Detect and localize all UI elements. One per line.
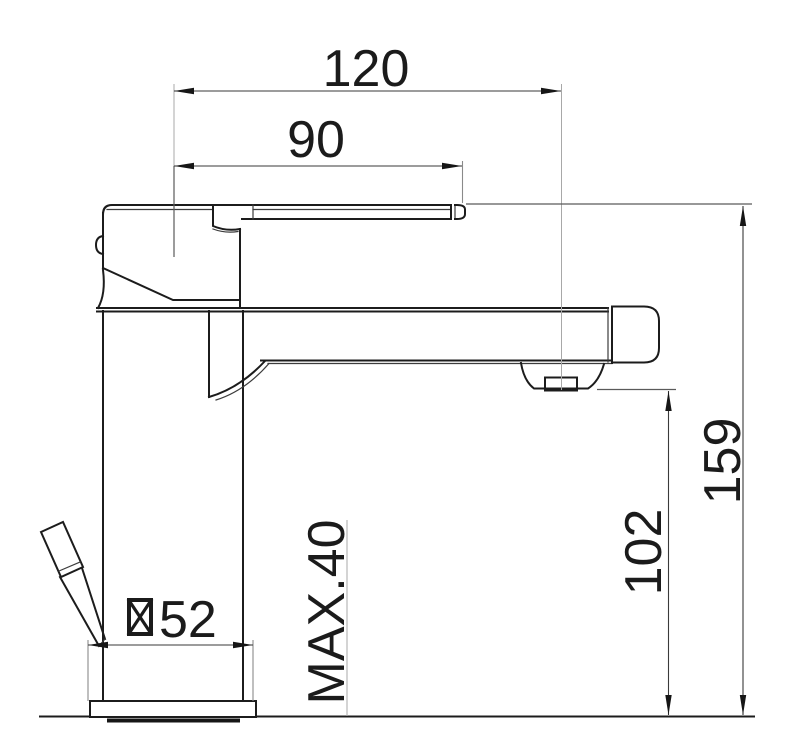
label-outlet-height: 102 [615, 509, 673, 596]
base-plate [90, 701, 256, 721]
faucet-outline [40, 205, 754, 721]
aerator [521, 363, 604, 391]
label-spout-reach: 120 [323, 40, 410, 98]
pop-up-rod [41, 522, 105, 646]
rod-grip [41, 522, 83, 577]
label-max-deck-thickness: MAX.40 [298, 520, 356, 705]
dimension-labels: 120 90 159 102 MAX.40 52 [128, 40, 752, 704]
spout-end-cap [612, 307, 659, 363]
lever-handle [103, 205, 465, 232]
technical-drawing: 120 90 159 102 MAX.40 52 [0, 0, 800, 744]
spout [261, 307, 659, 364]
side-button-bulge [96, 236, 103, 254]
square-section-icon [128, 599, 152, 635]
label-handle-projection: 90 [287, 111, 345, 169]
label-base-width: 52 [159, 591, 217, 649]
label-overall-height: 159 [694, 418, 752, 505]
